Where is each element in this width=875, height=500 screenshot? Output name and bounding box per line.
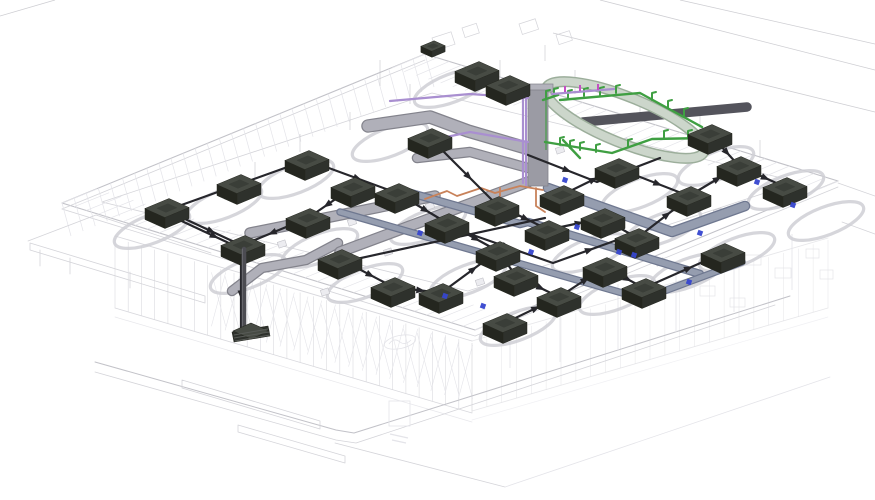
riser-column: [528, 90, 548, 186]
mep-model-rendering: [0, 0, 875, 500]
bim-3d-viewport[interactable]: [0, 0, 875, 500]
